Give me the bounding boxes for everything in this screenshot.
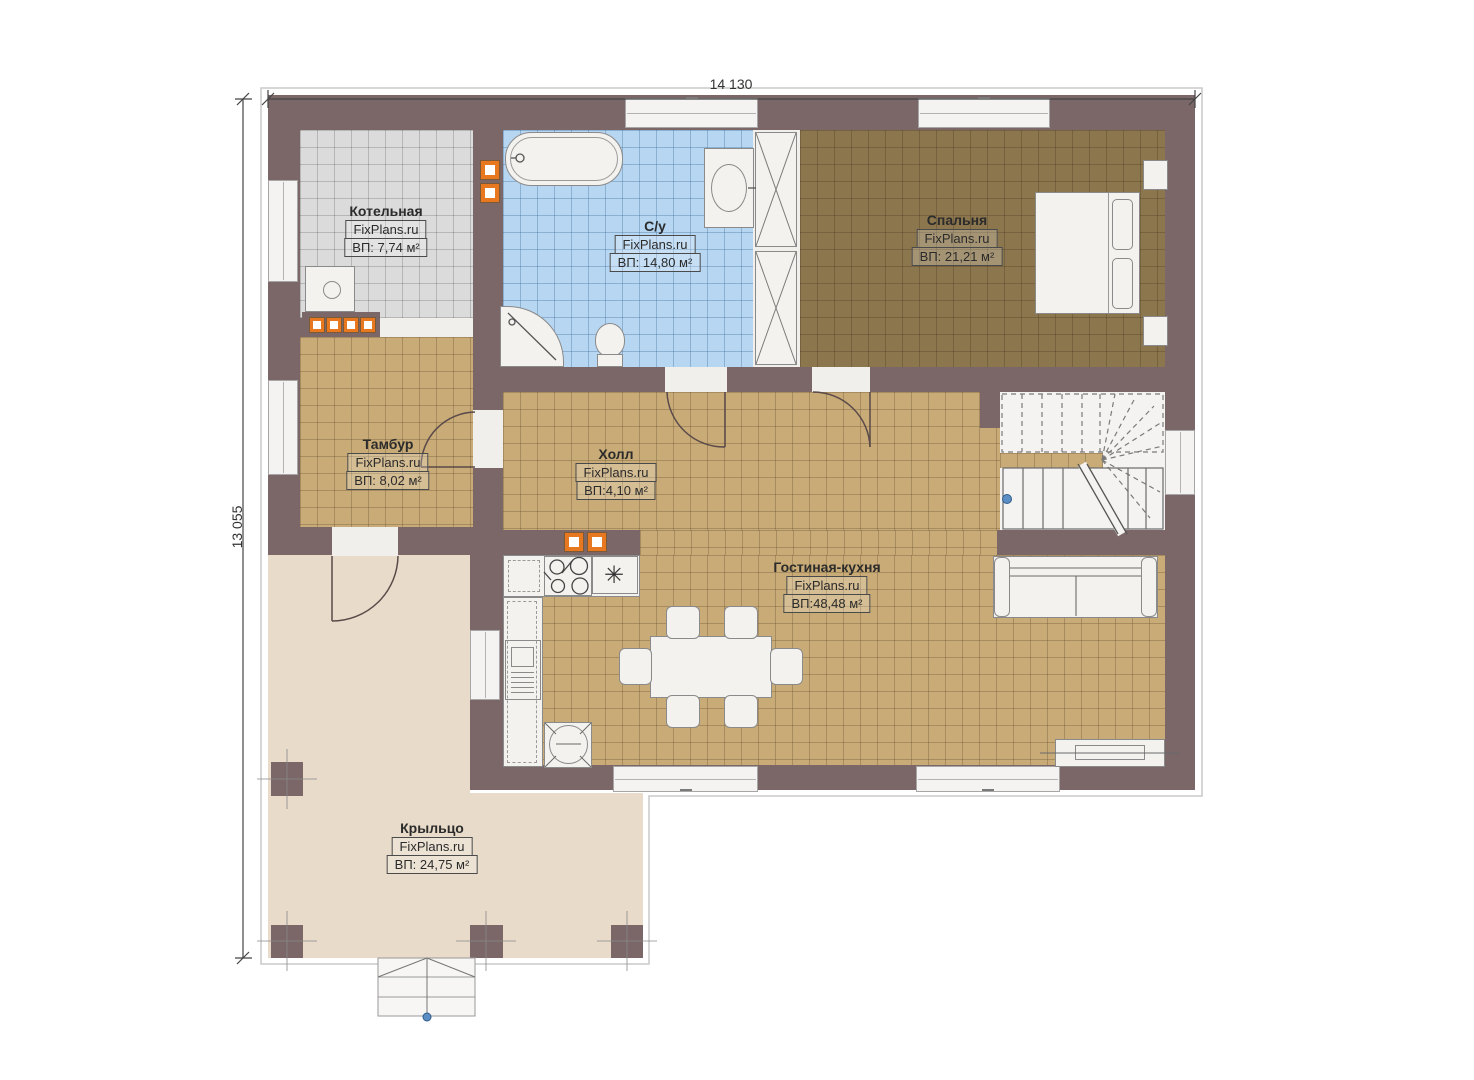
door-opening-bedroom [812,367,870,392]
room-area: ВП:4,10 м² [576,481,656,500]
vent-icon [310,318,324,332]
room-brand: FixPlans.ru [786,576,867,595]
dimension-width-label: 14 130 [710,76,753,92]
nightstand [1143,316,1168,346]
bed-fold-line [1108,193,1109,313]
window-bottom-living [916,766,1060,792]
dining-table [650,636,772,698]
sofa-armrest [1141,557,1157,617]
chair [666,606,700,639]
toilet-tank [597,354,623,367]
room-name: Крыльцо [400,820,464,836]
stairs-floor-gap [1000,453,1103,468]
room-label-hall: Холл FixPlans.ru ВП:4,10 м² [575,446,656,500]
wardrobe-bottom [755,251,797,365]
room-area: ВП: 24,75 м² [387,855,478,874]
wardrobe-top [755,132,797,247]
window-left-boiler [268,180,298,282]
room-name: Тамбур [363,436,414,452]
vent-icon [344,318,358,332]
door-opening-bathroom [665,367,727,392]
room-label-bathroom: С/у FixPlans.ru ВП: 14,80 м² [610,218,701,272]
room-name: Котельная [349,203,422,219]
window-top-bedroom [918,98,1050,128]
vent-icon [361,318,375,332]
porch-column [271,762,303,796]
dimension-height-label: 13 055 [229,506,245,549]
washbasin [711,164,747,212]
sink-icon: ✳ [604,564,624,588]
room-name: Гостиная-кухня [773,559,880,575]
vent-icon [481,184,499,202]
stairs-wall-stub [980,392,1000,428]
vent-icon [327,318,341,332]
vent-icon [588,533,606,551]
chair [619,648,652,685]
room-brand: FixPlans.ru [614,235,695,254]
floor-porch-left [268,555,470,958]
room-area: ВП:48,48 м² [783,594,870,613]
porch-column [470,925,503,958]
room-name: Холл [598,446,633,462]
vent-icon [565,533,583,551]
room-label-vestibule: Тамбур FixPlans.ru ВП: 8,02 м² [346,436,429,490]
room-area: ВП: 7,74 м² [344,238,427,257]
window-porch-kitchen [470,630,500,700]
floor-plan: ✳ [0,0,1474,1080]
window-left-vestibule [268,380,298,475]
floor-hall-living-passage [640,530,997,555]
stove [544,556,592,596]
entry-steps [378,958,475,1021]
room-brand: FixPlans.ru [916,229,997,248]
toilet-bowl [595,323,625,357]
upper-cabinet-dashed [508,560,540,592]
room-name: С/у [644,218,666,234]
room-brand: FixPlans.ru [575,463,656,482]
room-label-porch: Крыльцо FixPlans.ru ВП: 24,75 м² [387,820,478,874]
door-opening-entrance [332,527,398,556]
nightstand [1143,160,1168,190]
bathtub-inner [510,137,618,181]
refrigerator-top [511,647,534,667]
chair [666,695,700,728]
floor-vestibule [300,337,473,527]
door-opening-vestibule-hall [473,410,503,468]
porch-column [271,925,303,958]
room-area: ВП: 14,80 м² [610,253,701,272]
room-area: ВП: 8,02 м² [346,471,429,490]
chair [724,695,758,728]
tv [1075,745,1145,760]
window-top-bathroom [625,98,758,128]
room-brand: FixPlans.ru [391,837,472,856]
room-label-bedroom: Спальня FixPlans.ru ВП: 21,21 м² [912,212,1003,266]
refrigerator-hatch [511,672,534,694]
corner-sink [549,725,588,764]
room-name: Спальня [927,212,987,228]
boiler-room-passage [380,318,473,337]
room-label-living-kitchen: Гостиная-кухня FixPlans.ru ВП:48,48 м² [773,559,880,613]
window-bottom-kitchen [613,766,758,792]
sofa-armrest [994,557,1010,617]
pillow [1112,199,1133,250]
room-brand: FixPlans.ru [347,453,428,472]
porch-column [611,925,643,958]
steps-marker [423,1013,431,1021]
sofa [993,556,1158,618]
vent-icon [481,161,499,179]
room-area: ВП: 21,21 м² [912,247,1003,266]
window-right-stairs [1165,430,1195,495]
chair [770,648,803,685]
pillow [1112,258,1133,309]
room-label-boiler: Котельная FixPlans.ru ВП: 7,74 м² [344,203,427,257]
room-brand: FixPlans.ru [345,220,426,239]
boiler-drum-icon [323,281,341,299]
chair [724,606,758,639]
